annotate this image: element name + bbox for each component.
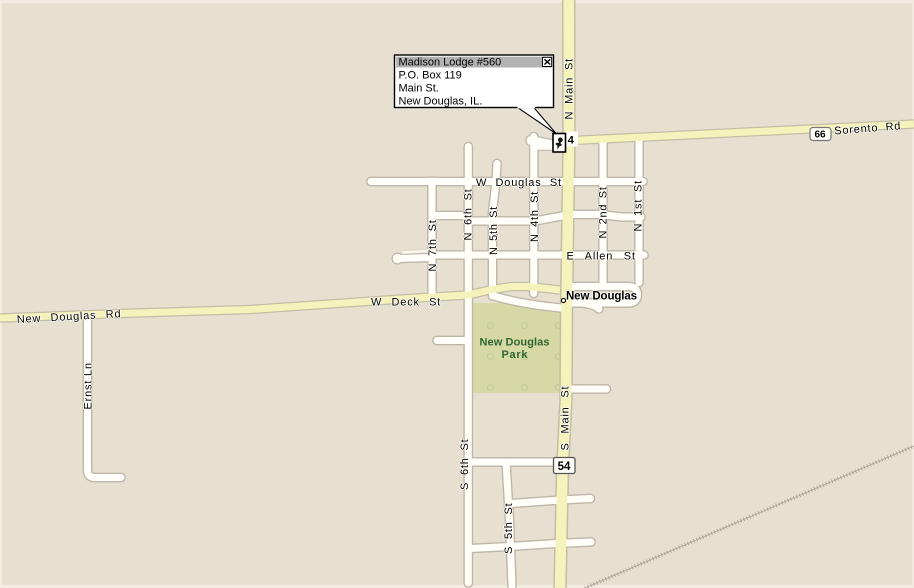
- svg-text:E Allen St: E Allen St: [567, 251, 636, 263]
- svg-text:N 6th St: N 6th St: [463, 188, 475, 240]
- svg-text:N 1st St: N 1st St: [633, 180, 645, 232]
- svg-text:N 5th St: N 5th St: [488, 206, 500, 255]
- svg-text:66: 66: [814, 129, 826, 140]
- svg-text:S 6th St: S 6th St: [459, 438, 471, 490]
- svg-text:N Main St: N Main St: [564, 58, 576, 120]
- svg-text:S Main St: S Main St: [560, 386, 572, 451]
- svg-text:N 7th St: N 7th St: [427, 219, 439, 271]
- svg-text:New Douglas: New Douglas: [480, 337, 550, 349]
- svg-text:Main St.: Main St.: [399, 83, 439, 95]
- svg-text:Madison Lodge #560: Madison Lodge #560: [399, 57, 502, 69]
- svg-text:N 2nd St: N 2nd St: [598, 186, 610, 238]
- svg-text:W Douglas St: W Douglas St: [476, 177, 562, 189]
- svg-text:54: 54: [558, 461, 571, 473]
- svg-text:4: 4: [568, 134, 575, 146]
- svg-text:N 4th St: N 4th St: [529, 191, 541, 242]
- svg-text:W Deck St: W Deck St: [371, 297, 441, 309]
- svg-text:P.O. Box 119: P.O. Box 119: [399, 70, 462, 82]
- svg-text:New Douglas: New Douglas: [566, 291, 637, 303]
- svg-text:S 5th St: S 5th St: [503, 502, 515, 554]
- svg-text:Ernst Ln: Ernst Ln: [83, 362, 95, 409]
- svg-text:New Douglas, IL.: New Douglas, IL.: [399, 96, 483, 108]
- svg-text:Park: Park: [502, 349, 529, 361]
